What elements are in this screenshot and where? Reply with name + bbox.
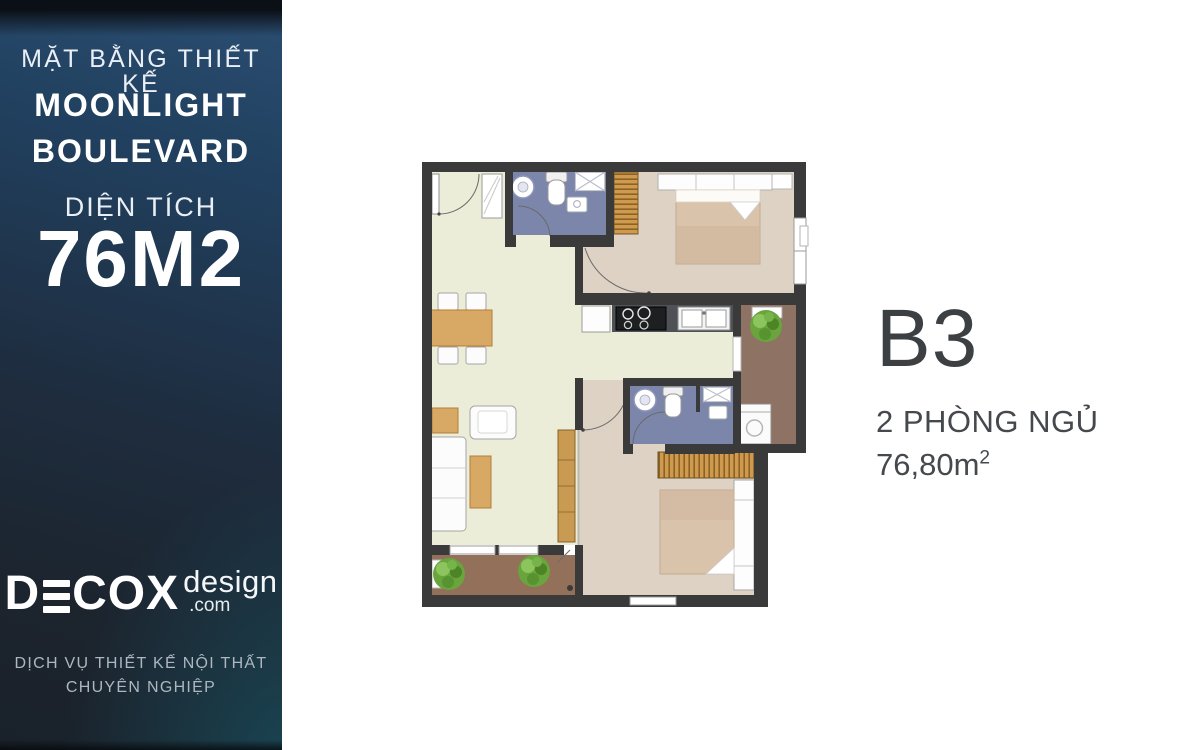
unit-area-value: 76,80m	[876, 447, 979, 482]
logo-domain-text: .com	[183, 597, 230, 614]
fridge-icon	[582, 306, 610, 332]
kitchen	[582, 305, 733, 332]
decox-logo: DCOX design .com	[0, 568, 282, 614]
logo-suffix-block: design .com	[183, 568, 277, 614]
sofa	[428, 437, 466, 531]
unit-area: 76,80m2	[876, 447, 1099, 483]
floor-plan	[420, 160, 810, 612]
project-name-line1: MOONLIGHT	[0, 89, 282, 121]
tagline-line1: DỊCH VỤ THIẾT KẾ NỘI THẤT	[0, 652, 282, 676]
window-living-2	[499, 546, 538, 554]
tagline-line2: CHUYÊN NGHIỆP	[0, 676, 282, 700]
stylized-e-icon	[43, 580, 70, 613]
unit-code: B3	[876, 298, 1099, 380]
door-balcony-right	[733, 337, 741, 371]
unit-bedrooms: 2 PHÒNG NGỦ	[876, 404, 1099, 440]
dining-table	[430, 310, 492, 346]
wardrobe-2	[658, 452, 754, 478]
side-table	[432, 408, 458, 433]
logo-design-text: design	[183, 568, 277, 596]
unit-info: B3 2 PHÒNG NGỦ 76,80m2	[876, 298, 1099, 483]
coffee-table	[470, 456, 491, 508]
sidebar: MẶT BẰNG THIẾT KẾ MOONLIGHT BOULEVARD DI…	[0, 0, 282, 750]
logo-brand-cox: COX	[72, 574, 179, 614]
area-value: 76M2	[0, 219, 282, 299]
window-bedroom-2	[630, 597, 676, 605]
logo-brand-d: D	[4, 574, 40, 614]
poster: MẶT BẰNG THIẾT KẾ MOONLIGHT BOULEVARD DI…	[0, 0, 1200, 750]
bedroom-1-corridor-floor	[582, 247, 640, 293]
project-name-line2: BOULEVARD	[0, 135, 282, 167]
wardrobe-1	[614, 172, 638, 234]
unit-area-superscript: 2	[979, 448, 990, 469]
bedroom-2-furniture	[658, 452, 754, 590]
tagline: DỊCH VỤ THIẾT KẾ NỘI THẤT CHUYÊN NGHIỆP	[0, 652, 282, 700]
window-living-1	[450, 546, 495, 554]
logo-brand: DCOX	[4, 574, 179, 614]
washer-icon	[738, 404, 771, 444]
